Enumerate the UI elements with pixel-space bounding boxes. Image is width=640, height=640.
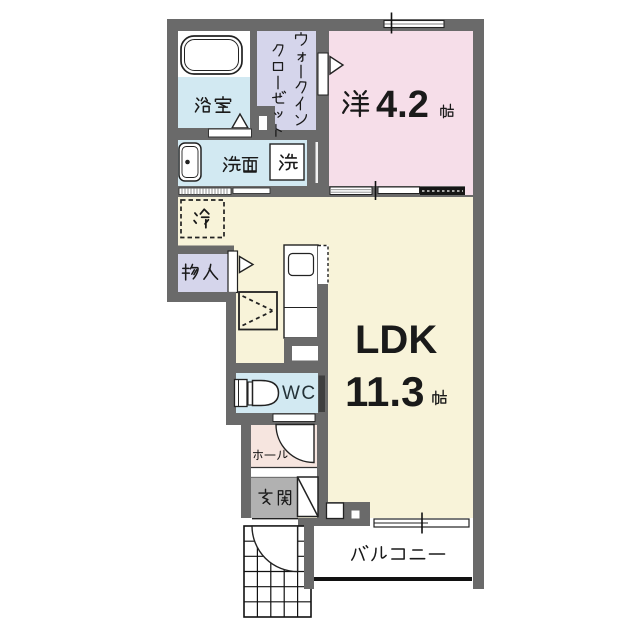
svg-text:11.3: 11.3 (345, 368, 424, 415)
svg-text:4.2: 4.2 (376, 84, 429, 126)
svg-text:WC: WC (282, 383, 317, 404)
svg-text:LDK: LDK (355, 318, 437, 362)
